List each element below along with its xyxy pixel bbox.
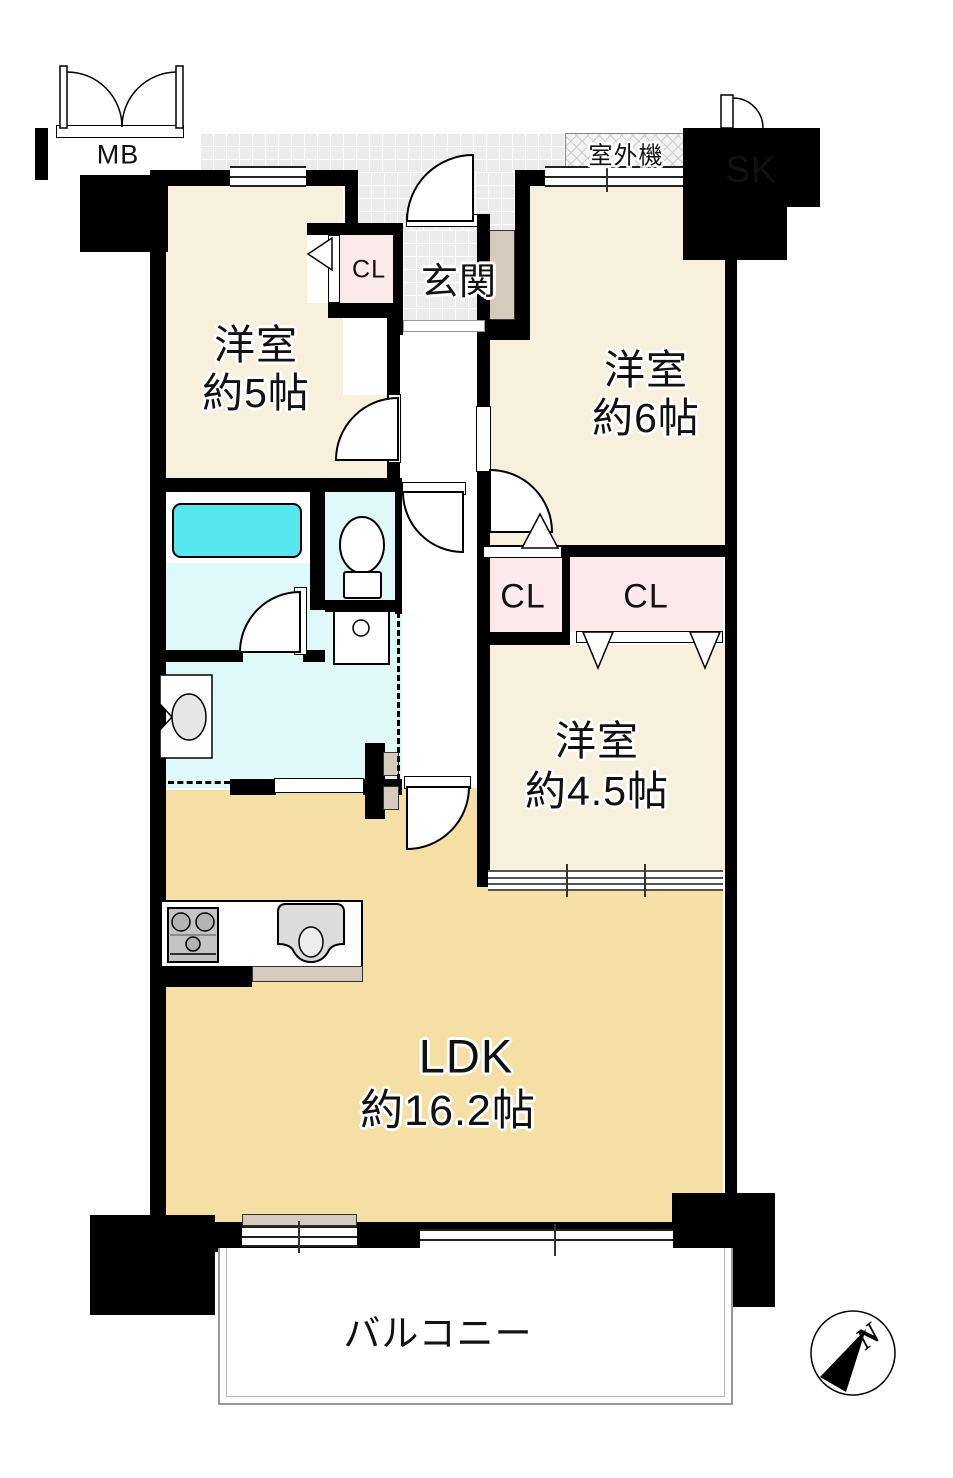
toilet-fixture	[340, 517, 384, 598]
closet3-label: CL	[623, 578, 668, 617]
bedroom5-door-swing	[336, 398, 398, 460]
closet3-fold-marker-left	[583, 632, 613, 668]
bedroom45-size-label: 約4.5帖	[525, 757, 669, 817]
outdoor-unit-label: 室外機	[589, 136, 664, 171]
plan-vector-overlay: N	[0, 0, 953, 1478]
kitchen-sink	[278, 904, 344, 962]
bath-door-swing	[240, 592, 300, 652]
ldk-size-label: 約16.2帖	[360, 1076, 536, 1138]
entrance-label: 玄関	[421, 251, 497, 305]
closet2-label: CL	[500, 578, 545, 617]
floor-plan: N MB SK 室外機 玄関 CL CL CL 洋室 約5帖 洋室 約6帖 洋室…	[0, 0, 953, 1478]
washing-machine-pan	[160, 675, 212, 758]
bedroom6-size-label: 約6帖	[592, 384, 700, 444]
compass: N	[811, 1311, 895, 1395]
sk-door	[721, 95, 763, 128]
ldk-door-swing	[407, 787, 469, 849]
front-door-swing	[407, 155, 473, 221]
closet3-fold-marker-right	[690, 632, 720, 668]
washroom-door-swing	[403, 492, 463, 552]
meter-box-label: MB	[97, 140, 140, 171]
closet1-fold-marker	[308, 238, 332, 270]
bedroom5-size-label: 約5帖	[202, 359, 310, 419]
slop-sink-label: SK	[725, 149, 776, 191]
closet1-label: CL	[352, 256, 386, 285]
vanity-faucet	[353, 620, 369, 636]
balcony-label: バルコニー	[343, 1303, 532, 1357]
stove	[168, 908, 218, 962]
mb-double-door	[60, 66, 183, 128]
